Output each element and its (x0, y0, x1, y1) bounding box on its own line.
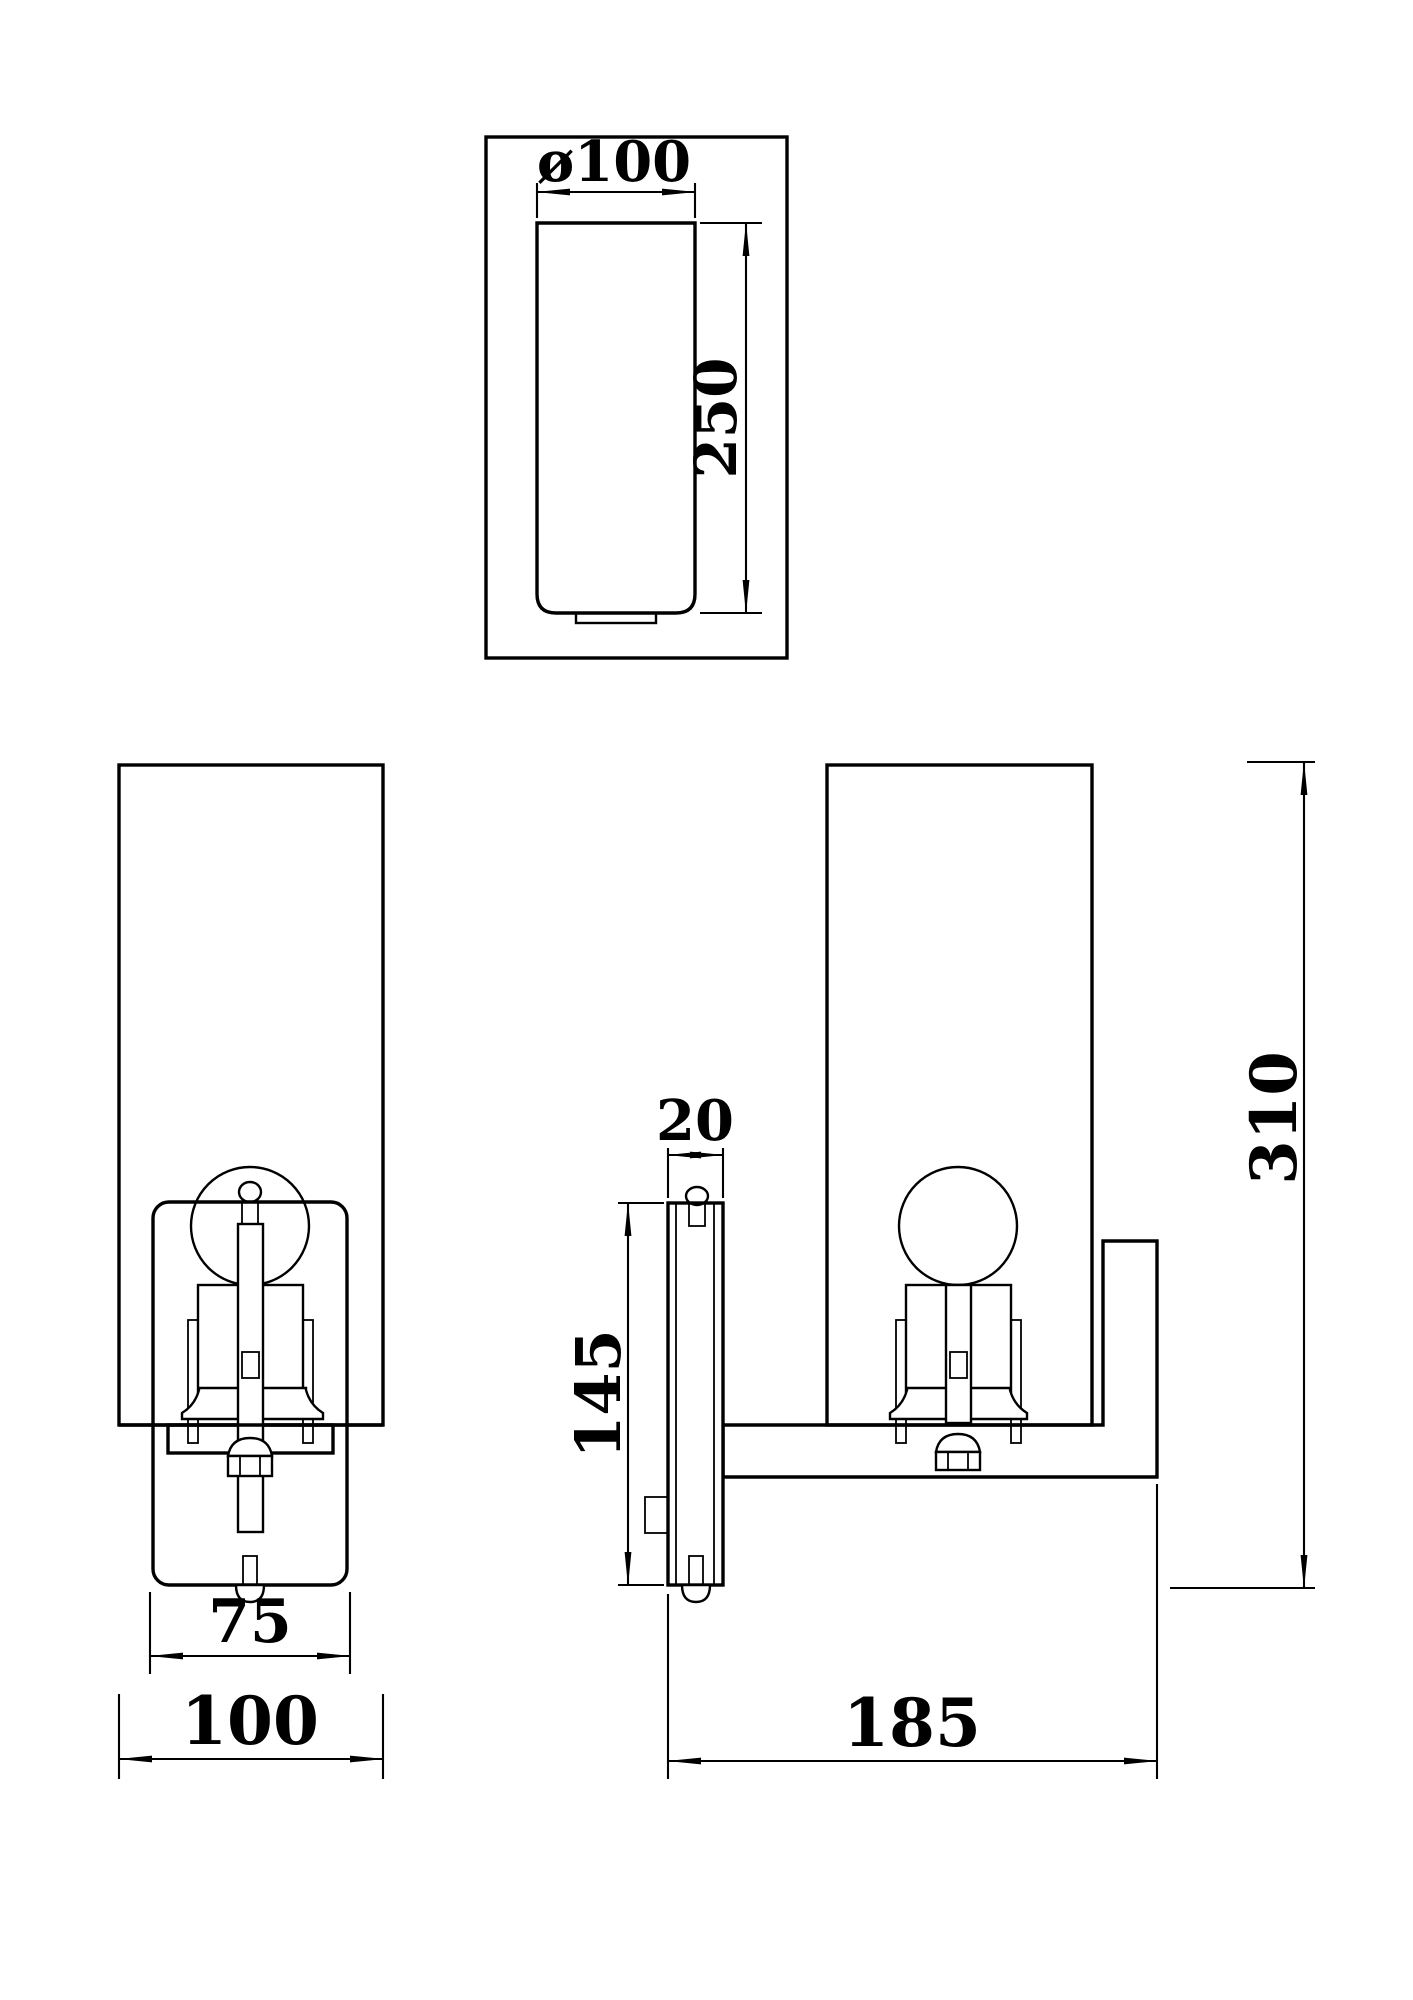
side-view: 20 145 310 185 (562, 762, 1315, 1779)
front-stem-screw-head-icon (239, 1182, 261, 1202)
side-knurled-thumbscrew (645, 1497, 668, 1533)
dim-side-plate-depth: 20 (656, 1088, 734, 1198)
top-view-shade-cylinder (537, 223, 695, 613)
dim-label-side-overall-height: 310 (1237, 1051, 1312, 1185)
drawing-sheet: ø100 250 75 (0, 0, 1413, 2000)
technical-drawing: ø100 250 75 (0, 0, 1413, 2000)
dim-label-front-backplate-width: 75 (208, 1587, 292, 1657)
side-bulb (899, 1167, 1017, 1285)
dim-label-side-overall-depth: 185 (843, 1684, 981, 1762)
dim-label-front-overall-width: 100 (181, 1682, 319, 1760)
dim-top-diameter: ø100 (537, 129, 695, 218)
dim-front-overall-width: 100 (119, 1682, 383, 1779)
dim-side-plate-height: 145 (562, 1203, 664, 1585)
dim-label-top-glass-height: 250 (682, 357, 750, 478)
front-view: 75 100 (119, 765, 383, 1779)
dim-side-overall-depth: 185 (668, 1484, 1157, 1779)
top-view: ø100 250 (486, 129, 787, 658)
side-bottom-screw-head-icon (682, 1585, 710, 1602)
front-nut-dome (228, 1438, 272, 1456)
dim-label-side-plate-height: 145 (562, 1329, 635, 1458)
dim-front-backplate-width: 75 (150, 1587, 350, 1674)
front-stem-screw-shaft (242, 1202, 258, 1224)
front-bottom-screw-shaft (243, 1556, 257, 1585)
side-hex-nut (936, 1452, 980, 1470)
front-hex-nut (228, 1456, 272, 1476)
dim-label-top-diameter: ø100 (537, 129, 691, 195)
side-nut-dome (936, 1434, 980, 1452)
dim-side-overall-height: 310 (1170, 762, 1315, 1588)
dim-label-side-plate-depth: 20 (656, 1088, 734, 1154)
